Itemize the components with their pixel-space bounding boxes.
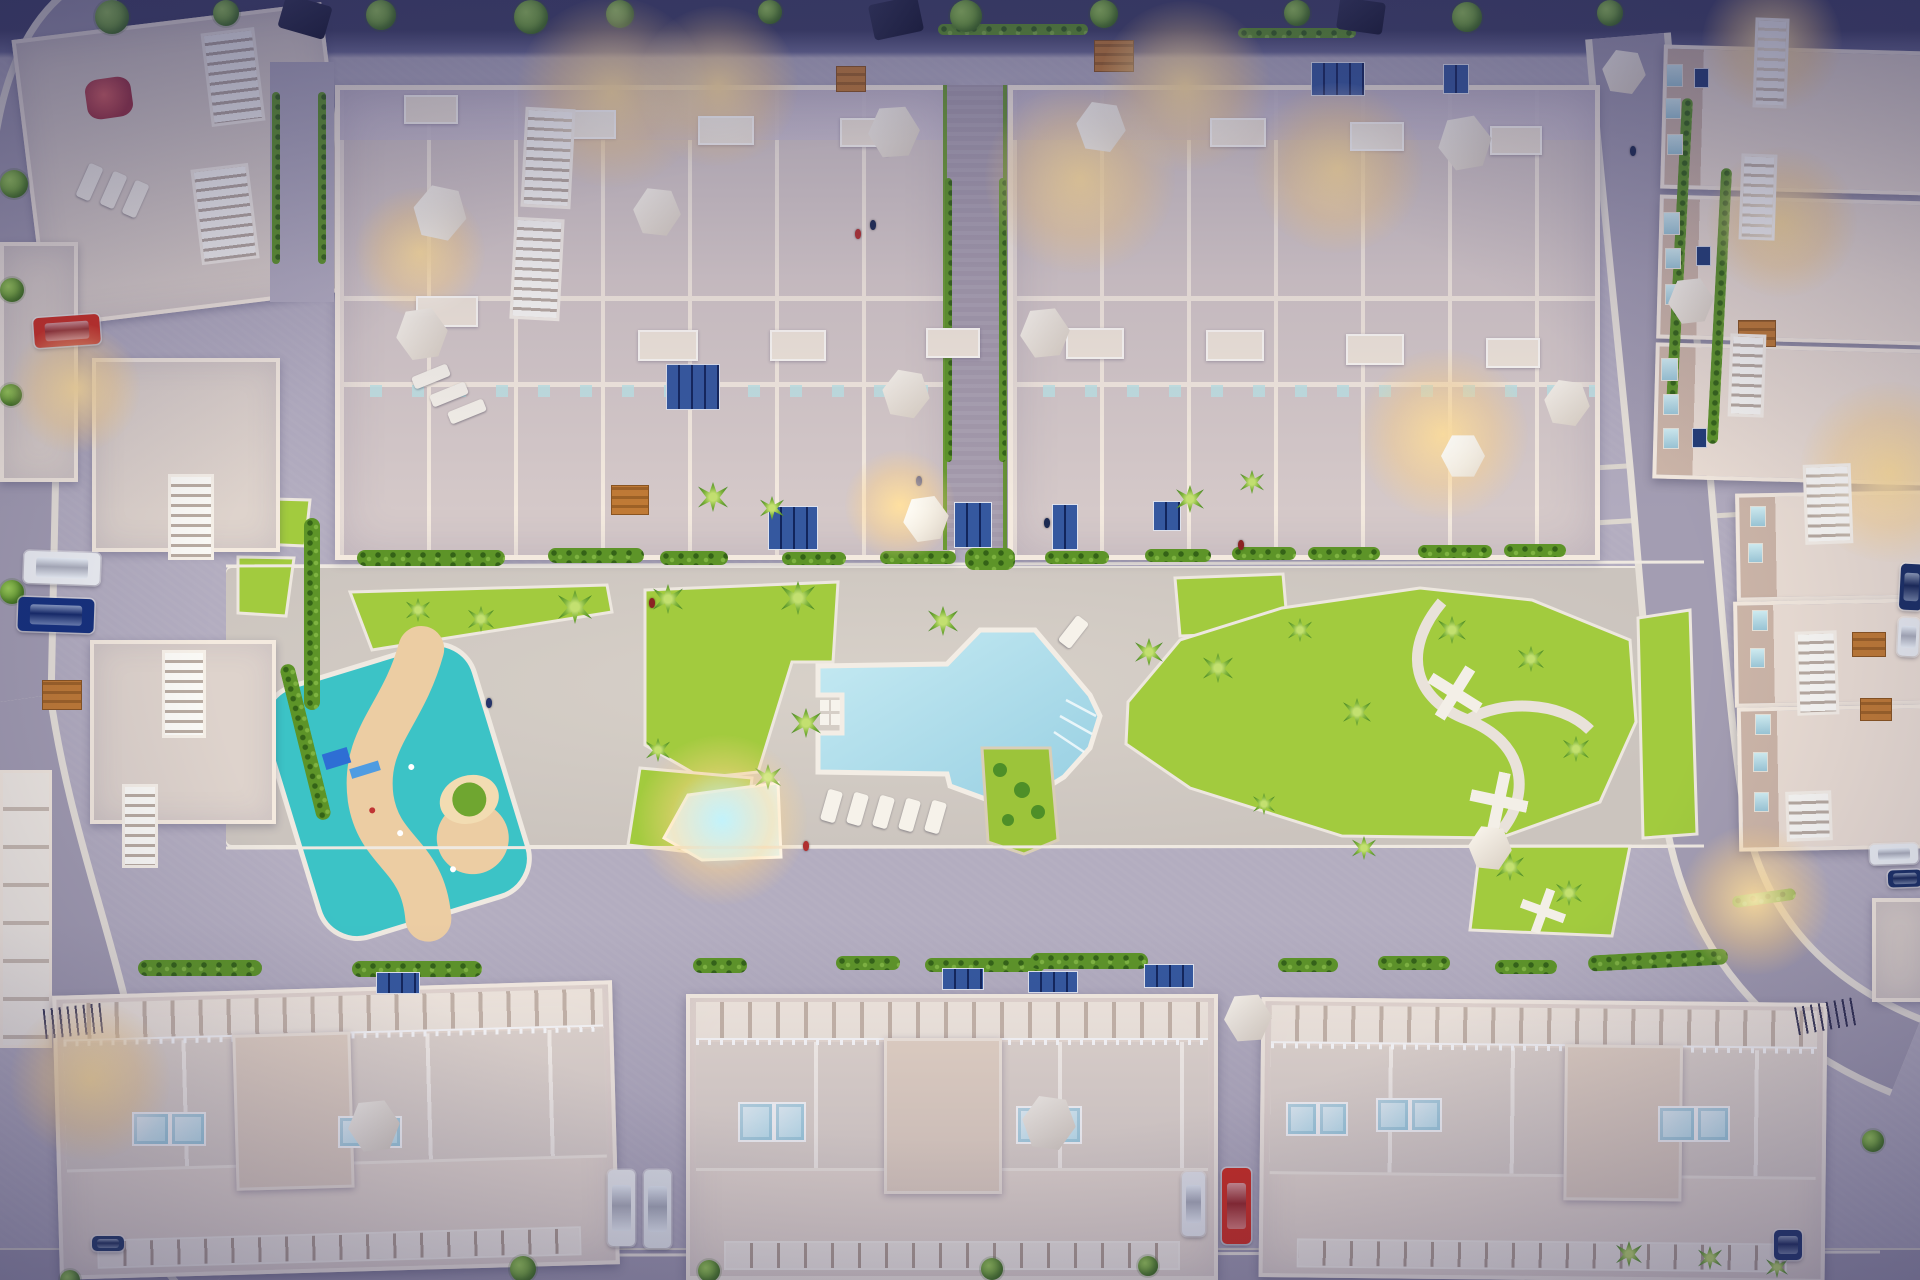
lounger <box>872 795 895 830</box>
panel <box>942 968 984 990</box>
umbrella <box>878 366 934 422</box>
hedge <box>138 960 262 976</box>
palm <box>1135 638 1163 666</box>
palm <box>1556 880 1582 906</box>
lounger <box>898 798 921 833</box>
hedge <box>318 92 326 264</box>
ppool <box>1410 1098 1442 1132</box>
car <box>1888 869 1920 887</box>
obox <box>42 680 82 710</box>
tree <box>510 1256 536 1280</box>
car <box>1222 1168 1251 1244</box>
panel <box>1052 504 1078 550</box>
person <box>1238 540 1244 550</box>
car <box>1774 1230 1802 1260</box>
umbrella <box>1222 992 1273 1043</box>
palm <box>1616 1241 1642 1267</box>
win <box>1667 134 1683 155</box>
person <box>1630 146 1636 156</box>
umbrella <box>631 186 684 239</box>
car <box>1897 617 1920 656</box>
xtable <box>1465 767 1534 836</box>
flower <box>83 75 134 121</box>
ppool <box>170 1112 206 1146</box>
win <box>1665 98 1681 119</box>
stairs <box>168 474 214 560</box>
hedge <box>1045 551 1109 564</box>
lounger <box>846 792 869 827</box>
person <box>1044 518 1050 528</box>
stairs <box>1728 333 1767 417</box>
hedge <box>1278 958 1338 972</box>
tree <box>950 0 982 32</box>
lounger <box>429 381 469 407</box>
umbrella <box>1019 1093 1080 1154</box>
car <box>1870 843 1919 865</box>
stairs <box>200 27 265 127</box>
box <box>1346 334 1404 365</box>
glow <box>10 323 140 453</box>
box <box>926 328 980 358</box>
tree <box>698 1260 720 1280</box>
umbrella <box>1541 377 1593 429</box>
umbrella <box>866 104 922 160</box>
win <box>1752 610 1768 631</box>
tree <box>1138 1256 1158 1276</box>
hedge <box>660 551 728 565</box>
umbrella <box>1599 47 1649 97</box>
hedge <box>1378 956 1450 970</box>
palm <box>1518 646 1544 672</box>
panel <box>954 502 992 548</box>
tree <box>1452 2 1482 32</box>
tree <box>0 170 28 198</box>
ppool <box>1318 1102 1348 1136</box>
car <box>1182 1172 1205 1236</box>
glow <box>638 6 798 166</box>
umbrella <box>1434 112 1497 175</box>
win <box>1665 248 1681 269</box>
person <box>870 220 876 230</box>
xtable <box>1415 653 1495 733</box>
palm <box>698 482 728 512</box>
glow <box>1707 147 1857 297</box>
glow <box>845 450 955 560</box>
palm <box>1203 653 1233 683</box>
box <box>770 330 826 361</box>
win <box>1663 428 1679 449</box>
winb <box>1692 428 1707 448</box>
palm <box>1563 736 1589 762</box>
car <box>92 1236 124 1251</box>
hedge <box>693 958 747 973</box>
palm <box>1698 1246 1722 1270</box>
glow <box>1100 1 1270 171</box>
hedge <box>1495 960 1557 974</box>
palm <box>1438 616 1466 644</box>
sprite-layer <box>0 0 1920 1280</box>
palm <box>928 606 958 636</box>
glow <box>1253 83 1423 253</box>
ppool <box>774 1102 806 1142</box>
palm <box>558 590 592 624</box>
canopy <box>277 0 333 40</box>
ppool <box>738 1102 774 1142</box>
lounger <box>121 180 149 219</box>
panel <box>666 364 720 410</box>
tree <box>1090 0 1118 28</box>
tree <box>60 1270 80 1280</box>
tree <box>366 0 396 30</box>
tree <box>95 0 129 34</box>
win <box>1666 64 1683 87</box>
stairs <box>1795 630 1840 715</box>
lounger <box>99 171 127 210</box>
obox <box>611 485 649 515</box>
palm <box>781 581 815 615</box>
palm <box>1343 698 1371 726</box>
box <box>404 95 458 124</box>
stairs <box>122 784 158 868</box>
winb <box>1694 68 1709 88</box>
lounger <box>924 800 947 835</box>
obox <box>1860 698 1892 721</box>
ppool <box>1696 1106 1730 1142</box>
win <box>1755 714 1771 735</box>
aerial-residential-render <box>0 0 1920 1280</box>
hedge <box>1308 547 1380 560</box>
win <box>1754 792 1769 812</box>
lounger <box>411 363 451 389</box>
glow <box>355 187 485 317</box>
hedge <box>945 178 952 462</box>
lounger <box>820 789 843 824</box>
tree <box>1597 0 1623 26</box>
palm <box>468 606 494 632</box>
palm <box>1352 836 1376 860</box>
palm <box>791 708 821 738</box>
panel <box>1443 64 1469 94</box>
person <box>855 229 861 239</box>
box <box>1490 126 1542 155</box>
person <box>486 698 492 708</box>
glow <box>10 1000 170 1160</box>
hedge <box>1030 953 1148 969</box>
hedge <box>1145 549 1211 562</box>
glow <box>1358 349 1528 519</box>
umbrella <box>1018 306 1073 361</box>
panel <box>768 506 818 550</box>
hedge <box>304 518 320 710</box>
tree <box>213 0 239 26</box>
win <box>1748 543 1763 563</box>
tree <box>1862 1130 1884 1152</box>
car <box>17 597 94 634</box>
win <box>1663 212 1680 235</box>
palm <box>1288 618 1312 642</box>
hedge <box>1504 544 1566 557</box>
stairs <box>162 650 206 738</box>
canopy <box>868 0 924 41</box>
car <box>23 551 100 586</box>
person <box>649 598 655 608</box>
palm <box>653 584 683 614</box>
car <box>644 1170 671 1248</box>
lounger <box>75 163 103 202</box>
palm <box>1253 793 1275 815</box>
win <box>1663 394 1679 415</box>
car <box>608 1170 635 1246</box>
bikes <box>1794 997 1860 1035</box>
palm <box>1240 470 1264 494</box>
panel <box>376 972 420 994</box>
win <box>1753 752 1768 772</box>
hedge <box>357 550 505 566</box>
car <box>1899 563 1920 610</box>
canopy <box>1336 0 1386 35</box>
winb <box>1696 246 1711 266</box>
stairs <box>509 217 564 321</box>
stairs <box>190 163 259 265</box>
panel <box>1028 971 1078 993</box>
lounger <box>447 398 487 424</box>
obox <box>1852 632 1886 657</box>
hedge <box>965 548 1015 570</box>
glow <box>1680 825 1830 975</box>
tree <box>1284 0 1310 26</box>
ppool <box>1658 1106 1696 1142</box>
obox <box>836 66 866 92</box>
hedge <box>548 548 644 563</box>
palm <box>406 598 430 622</box>
glow <box>637 735 807 905</box>
panel <box>1144 964 1194 988</box>
hedge <box>836 956 900 970</box>
tree <box>981 1258 1003 1280</box>
hedge <box>272 92 280 264</box>
hedge <box>1238 28 1356 38</box>
box <box>1066 328 1124 359</box>
hedge <box>782 552 846 565</box>
glow <box>1702 0 1842 112</box>
tree <box>0 278 24 302</box>
win <box>1750 648 1765 668</box>
win <box>1661 358 1678 381</box>
ppool <box>1376 1098 1410 1132</box>
hedge <box>1418 545 1492 558</box>
box <box>1486 338 1540 368</box>
win <box>1750 506 1766 527</box>
box <box>1206 330 1264 361</box>
box <box>638 330 698 361</box>
lounger <box>1058 615 1090 649</box>
panel <box>1153 501 1181 531</box>
ppool <box>1286 1102 1318 1136</box>
